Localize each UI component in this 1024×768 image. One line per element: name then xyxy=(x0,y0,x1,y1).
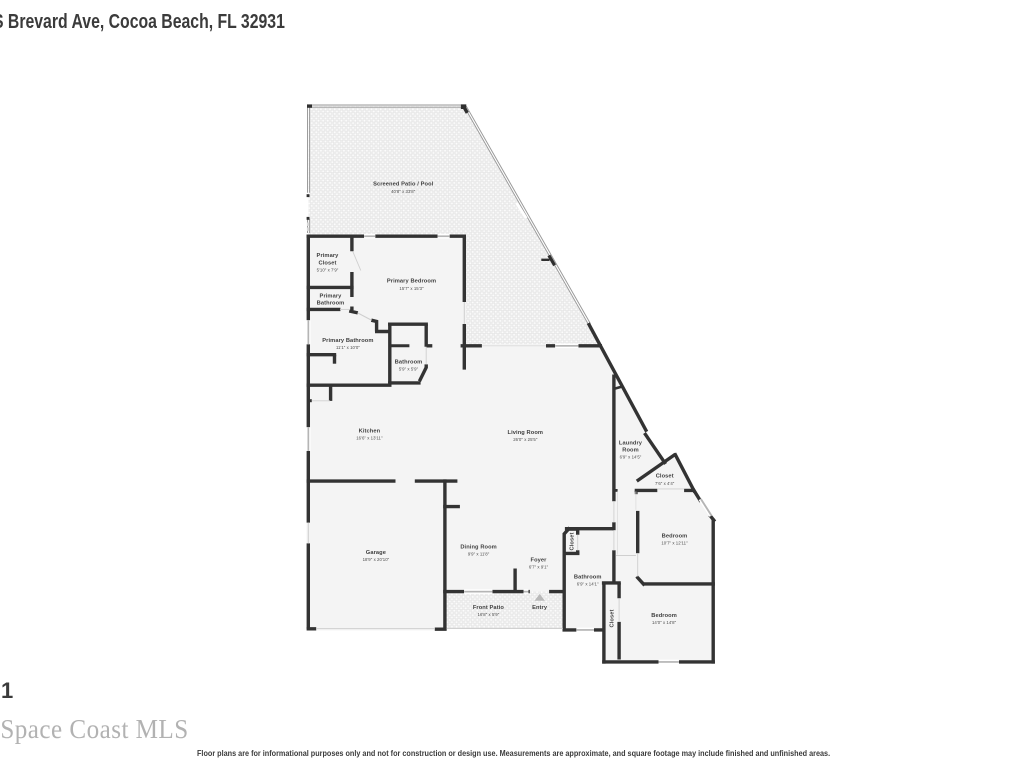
svg-text:Dining Room: Dining Room xyxy=(460,544,496,550)
svg-text:10'7" x 12'11": 10'7" x 12'11" xyxy=(661,540,688,545)
svg-text:Primary: Primary xyxy=(317,253,340,259)
svg-text:Bathroom: Bathroom xyxy=(317,301,345,307)
svg-text:11'1" x 10'0": 11'1" x 10'0" xyxy=(336,345,360,350)
svg-text:Front Patio: Front Patio xyxy=(473,605,505,611)
svg-text:Bedroom: Bedroom xyxy=(651,613,677,619)
svg-text:14'0" x 14'8": 14'0" x 14'8" xyxy=(652,620,677,625)
svg-text:Kitchen: Kitchen xyxy=(359,429,381,435)
svg-text:16'6" x 13'11": 16'6" x 13'11" xyxy=(356,436,383,441)
svg-text:Room: Room xyxy=(622,448,639,454)
svg-text:26'0" x 25'5": 26'0" x 25'5" xyxy=(513,437,538,442)
svg-text:Living Room: Living Room xyxy=(508,430,544,436)
svg-text:Primary Bathroom: Primary Bathroom xyxy=(322,338,373,344)
svg-text:5'9" x 5'9": 5'9" x 5'9" xyxy=(399,367,419,372)
svg-text:Screened Patio / Pool: Screened Patio / Pool xyxy=(373,182,434,188)
svg-text:40'8" x 33'8": 40'8" x 33'8" xyxy=(391,189,416,194)
svg-text:Entry: Entry xyxy=(532,605,548,611)
svg-text:Closet: Closet xyxy=(609,610,615,628)
svg-text:9'9" x 11'8": 9'9" x 11'8" xyxy=(468,551,490,556)
svg-text:6'9" x 14'5": 6'9" x 14'5" xyxy=(620,455,642,460)
svg-text:Primary Bedroom: Primary Bedroom xyxy=(387,279,436,285)
svg-text:16'8" x 5'9": 16'8" x 5'9" xyxy=(478,612,500,617)
svg-text:Bedroom: Bedroom xyxy=(662,534,688,540)
svg-text:6'7" x 9'1": 6'7" x 9'1" xyxy=(529,564,549,569)
svg-text:18'9" x 20'10": 18'9" x 20'10" xyxy=(363,557,390,562)
svg-text:7'6" x 4'4": 7'6" x 4'4" xyxy=(655,481,675,486)
svg-text:Closet: Closet xyxy=(319,260,337,266)
svg-text:Bathroom: Bathroom xyxy=(574,574,602,580)
svg-text:Closet: Closet xyxy=(569,533,575,551)
svg-text:15'7" x 15'3": 15'7" x 15'3" xyxy=(399,286,424,291)
svg-text:Foyer: Foyer xyxy=(531,558,548,564)
svg-text:Closet: Closet xyxy=(656,473,674,479)
svg-text:Bathroom: Bathroom xyxy=(395,360,423,366)
svg-text:6'9" x 14'1": 6'9" x 14'1" xyxy=(577,581,599,586)
svg-text:Primary: Primary xyxy=(320,293,343,299)
svg-text:Garage: Garage xyxy=(366,550,386,556)
svg-text:Laundry: Laundry xyxy=(619,441,643,447)
svg-text:5'10" x 7'9": 5'10" x 7'9" xyxy=(317,267,339,272)
